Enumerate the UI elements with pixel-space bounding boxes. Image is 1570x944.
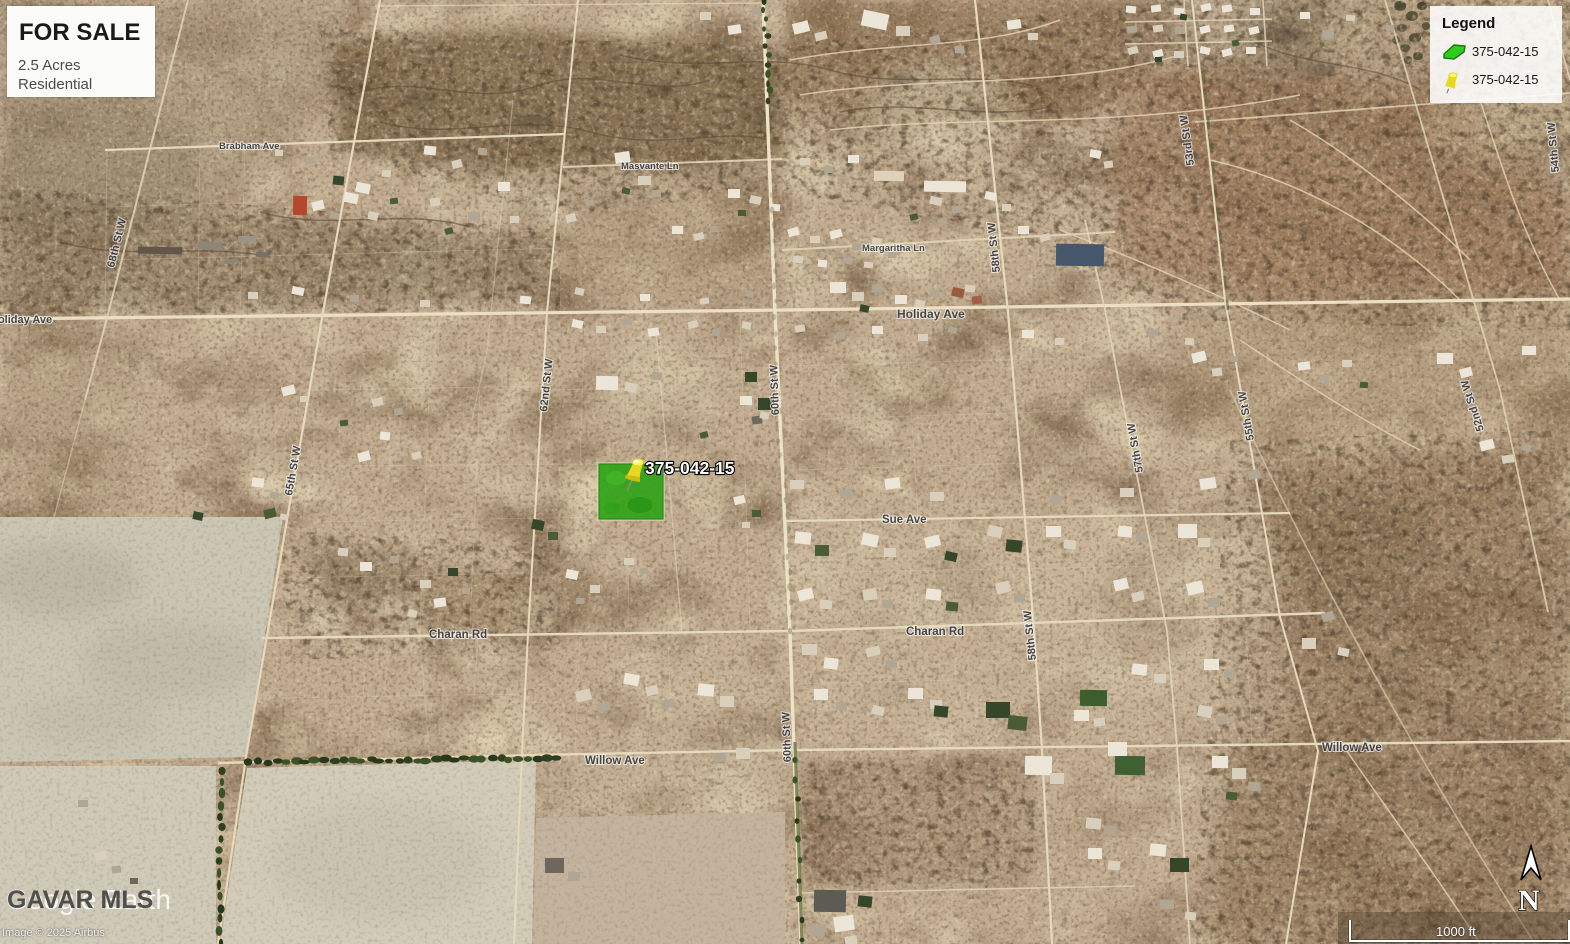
svg-text:60th St W: 60th St W: [780, 711, 794, 762]
svg-text:375-042-15: 375-042-15: [1472, 72, 1539, 87]
svg-text:375-042-15: 375-042-15: [1472, 44, 1539, 59]
svg-text:Charan Rd: Charan Rd: [429, 629, 487, 641]
svg-text:1000 ft: 1000 ft: [1436, 924, 1476, 939]
svg-text:Willow Ave: Willow Ave: [585, 755, 645, 767]
svg-text:Masvante Ln: Masvante Ln: [621, 161, 679, 172]
svg-text:Brabham Ave: Brabham Ave: [219, 141, 280, 152]
svg-text:375-042-15: 375-042-15: [645, 458, 735, 478]
svg-text:Willow Ave: Willow Ave: [1322, 742, 1382, 754]
svg-text:Sue Ave: Sue Ave: [882, 514, 927, 526]
svg-text:Holiday Ave: Holiday Ave: [897, 307, 965, 321]
svg-text:Holiday Ave: Holiday Ave: [0, 314, 52, 326]
svg-text:Margaritha Ln: Margaritha Ln: [862, 243, 925, 254]
svg-text:Charan Rd: Charan Rd: [906, 626, 964, 638]
svg-text:60th St W: 60th St W: [768, 364, 782, 415]
svg-text:N: N: [1518, 884, 1540, 917]
